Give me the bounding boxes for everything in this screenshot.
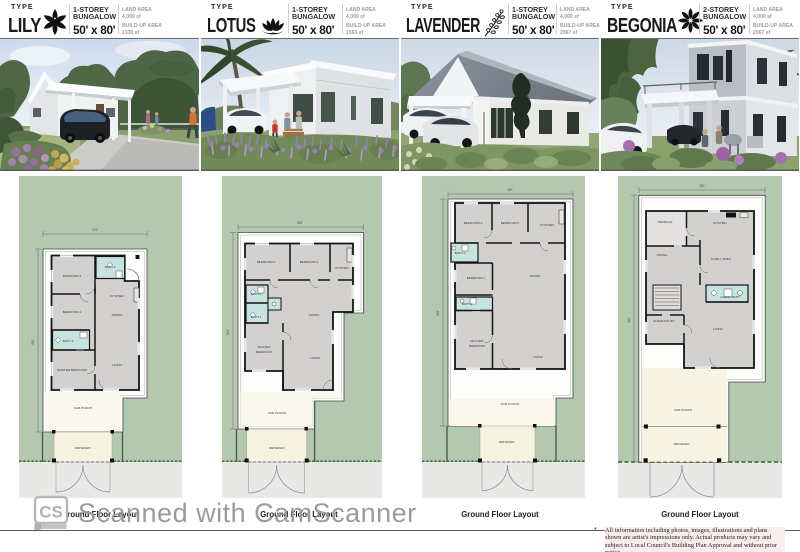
svg-text:DRIVEWAY: DRIVEWAY — [269, 446, 285, 450]
svg-text:CAR PORCH: CAR PORCH — [268, 411, 287, 415]
svg-text:BEDROOM 2: BEDROOM 2 — [464, 221, 483, 225]
svg-text:KITCHEN: KITCHEN — [713, 221, 727, 225]
svg-text:CAR PORCH: CAR PORCH — [74, 406, 93, 410]
svg-text:DINING: DINING — [112, 313, 123, 317]
svg-text:KITCHEN: KITCHEN — [110, 294, 124, 298]
svg-text:BATH 2: BATH 2 — [105, 265, 116, 269]
svg-text:BEDROOM 3: BEDROOM 3 — [501, 221, 520, 225]
svg-text:80': 80' — [626, 317, 631, 322]
svg-text:MASTER: MASTER — [471, 339, 485, 343]
svg-text:CS: CS — [39, 503, 63, 522]
svg-text:BEDROOM 2: BEDROOM 2 — [300, 260, 319, 264]
svg-text:BATH 2: BATH 2 — [251, 292, 262, 296]
svg-text:LIVING: LIVING — [112, 363, 123, 367]
svg-text:DRIVEWAY: DRIVEWAY — [674, 442, 690, 446]
svg-text:DINING: DINING — [530, 274, 541, 278]
svg-text:GUEST/STUDY: GUEST/STUDY — [653, 319, 675, 323]
svg-text:MASTER BEDROOM: MASTER BEDROOM — [57, 368, 87, 372]
svg-text:MASTER: MASTER — [258, 345, 272, 349]
svg-text:80': 80' — [297, 220, 302, 225]
svg-text:TERRACE: TERRACE — [658, 220, 673, 224]
svg-text:50': 50' — [225, 329, 230, 334]
svg-text:CAR PORCH: CAR PORCH — [674, 408, 693, 412]
svg-text:DINING: DINING — [309, 313, 320, 317]
svg-text:DRIVEWAY: DRIVEWAY — [75, 446, 91, 450]
svg-text:BATH 1: BATH 1 — [251, 315, 262, 319]
svg-text:CAR PORCH: CAR PORCH — [501, 402, 520, 406]
svg-text:24': 24' — [92, 227, 97, 232]
svg-text:BEDROOM 1: BEDROOM 1 — [257, 260, 276, 264]
svg-text:KITCHEN: KITCHEN — [335, 266, 349, 270]
svg-text:DINING: DINING — [657, 253, 668, 257]
svg-text:80': 80' — [435, 310, 440, 315]
svg-text:BEDROOM: BEDROOM — [256, 350, 272, 354]
svg-text:KITCHEN: KITCHEN — [540, 223, 554, 227]
svg-text:LIVING: LIVING — [533, 355, 544, 359]
svg-text:LIVING: LIVING — [310, 356, 321, 360]
svg-text:BATH 1: BATH 1 — [63, 339, 74, 343]
svg-text:LIVING: LIVING — [713, 327, 724, 331]
svg-text:BEDROOM 2: BEDROOM 2 — [63, 274, 82, 278]
svg-text:30': 30' — [699, 183, 704, 188]
svg-text:BEDROOM 1: BEDROOM 1 — [467, 276, 486, 280]
svg-text:DRIVEWAY: DRIVEWAY — [499, 440, 515, 444]
svg-text:FAMILY AREA: FAMILY AREA — [711, 257, 732, 261]
svg-text:GUEST BATH: GUEST BATH — [720, 295, 739, 299]
svg-text:30': 30' — [507, 187, 512, 192]
svg-text:50': 50' — [30, 339, 35, 344]
svg-text:BEDROOM 1: BEDROOM 1 — [63, 310, 82, 314]
svg-text:BATH 2: BATH 2 — [455, 251, 466, 255]
svg-text:BEDROOM: BEDROOM — [469, 344, 485, 348]
svg-text:BATH 1: BATH 1 — [462, 302, 473, 306]
